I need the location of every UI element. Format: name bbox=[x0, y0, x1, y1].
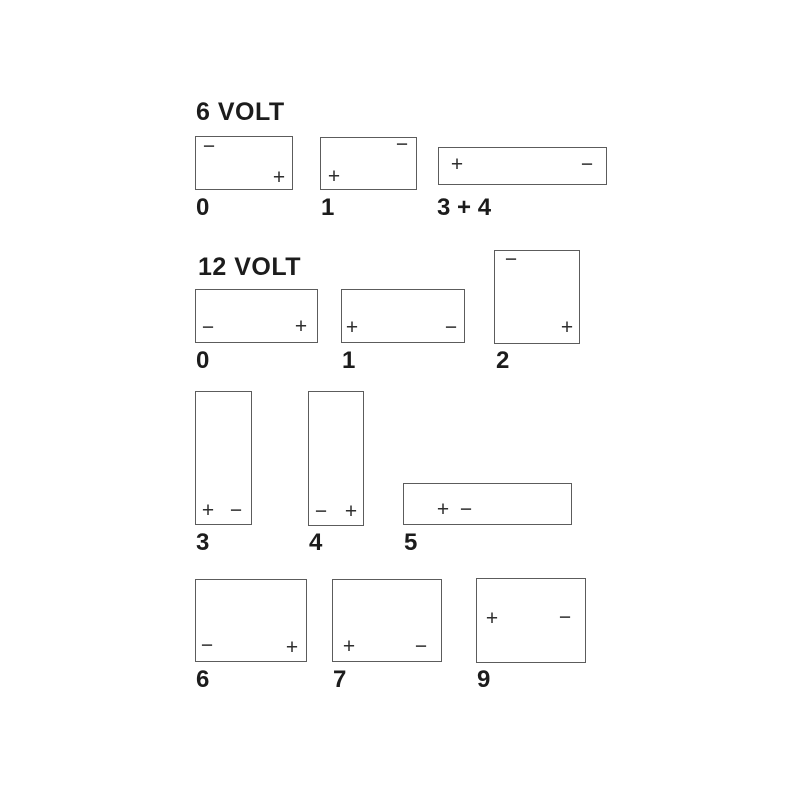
plus-terminal-icon: + bbox=[273, 167, 285, 188]
minus-terminal-icon: − bbox=[505, 249, 517, 270]
battery-label-12v-9: 9 bbox=[477, 668, 490, 692]
plus-terminal-icon: + bbox=[437, 499, 449, 520]
battery-label-12v-4: 4 bbox=[309, 531, 322, 555]
plus-terminal-icon: + bbox=[451, 154, 463, 175]
plus-terminal-icon: + bbox=[345, 501, 357, 522]
battery-label-6v-0: 0 bbox=[196, 196, 209, 220]
battery-box-12v-1: + − bbox=[341, 289, 465, 343]
battery-label-12v-0: 0 bbox=[196, 349, 209, 373]
minus-terminal-icon: − bbox=[230, 500, 242, 521]
battery-box-12v-2: − + bbox=[494, 250, 580, 344]
battery-box-12v-3: + − bbox=[195, 391, 252, 525]
battery-label-12v-6: 6 bbox=[196, 668, 209, 692]
minus-terminal-icon: − bbox=[460, 499, 472, 520]
plus-terminal-icon: + bbox=[295, 316, 307, 337]
battery-label-12v-3: 3 bbox=[196, 531, 209, 555]
battery-label-6v-3-4: 3 + 4 bbox=[437, 196, 491, 220]
battery-label-12v-5: 5 bbox=[404, 531, 417, 555]
minus-terminal-icon: − bbox=[315, 501, 327, 522]
battery-box-12v-7: + − bbox=[332, 579, 442, 662]
section-heading-6-volt: 6 VOLT bbox=[196, 100, 285, 125]
battery-label-6v-1: 1 bbox=[321, 196, 334, 220]
battery-box-6v-0: − + bbox=[195, 136, 293, 190]
minus-terminal-icon: − bbox=[203, 136, 215, 157]
plus-terminal-icon: + bbox=[202, 500, 214, 521]
battery-box-12v-6: − + bbox=[195, 579, 307, 662]
battery-box-12v-9: + − bbox=[476, 578, 586, 663]
battery-box-12v-4: − + bbox=[308, 391, 364, 526]
minus-terminal-icon: − bbox=[559, 607, 571, 628]
battery-box-12v-0: − + bbox=[195, 289, 318, 343]
minus-terminal-icon: − bbox=[201, 635, 213, 656]
battery-label-12v-2: 2 bbox=[496, 349, 509, 373]
minus-terminal-icon: − bbox=[202, 317, 214, 338]
battery-box-6v-1: − + bbox=[320, 137, 417, 190]
plus-terminal-icon: + bbox=[486, 608, 498, 629]
battery-label-12v-7: 7 bbox=[333, 668, 346, 692]
minus-terminal-icon: − bbox=[445, 317, 457, 338]
plus-terminal-icon: + bbox=[561, 317, 573, 338]
plus-terminal-icon: + bbox=[343, 636, 355, 657]
minus-terminal-icon: − bbox=[581, 154, 593, 175]
battery-layout-diagram: 6 VOLT − + 0 − + 1 + − 3 + 4 12 VOLT − +… bbox=[0, 0, 800, 800]
battery-label-12v-1: 1 bbox=[342, 349, 355, 373]
plus-terminal-icon: + bbox=[286, 637, 298, 658]
battery-box-12v-5: + − bbox=[403, 483, 572, 525]
battery-box-6v-3-4: + − bbox=[438, 147, 607, 185]
plus-terminal-icon: + bbox=[328, 166, 340, 187]
plus-terminal-icon: + bbox=[346, 317, 358, 338]
minus-terminal-icon: − bbox=[396, 134, 408, 155]
minus-terminal-icon: − bbox=[415, 636, 427, 657]
section-heading-12-volt: 12 VOLT bbox=[198, 255, 301, 280]
